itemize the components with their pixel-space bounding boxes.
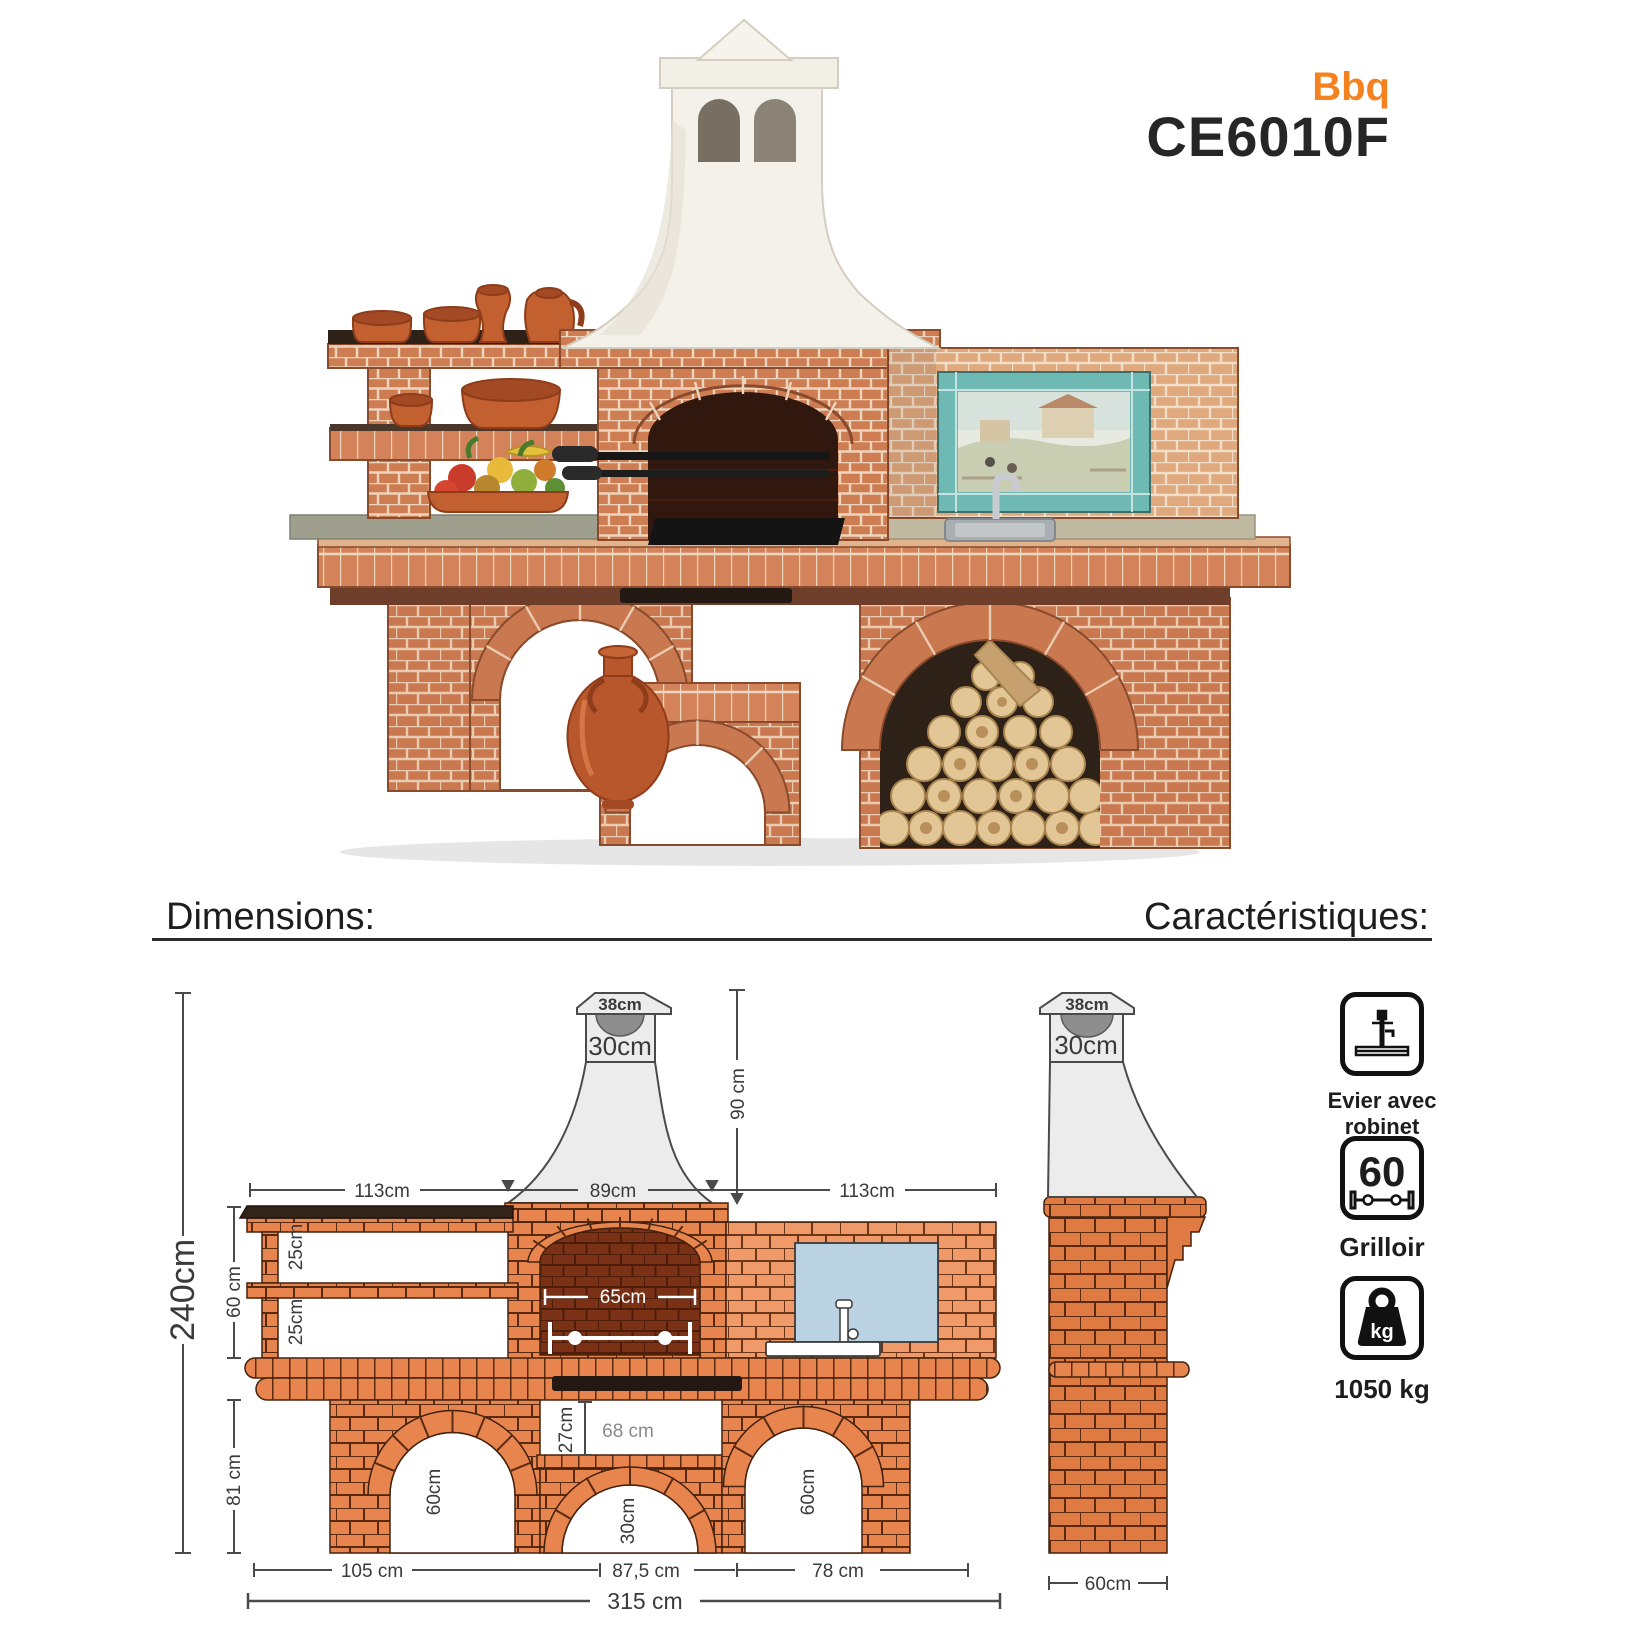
front-cap-width: 38cm xyxy=(598,995,641,1014)
side-cap-width: 38cm xyxy=(1065,995,1108,1014)
tile-panel-front xyxy=(795,1243,938,1342)
feature-weight-label: 1050 kg xyxy=(1292,1374,1472,1405)
sink-faucet-icon xyxy=(1345,997,1419,1071)
side-view xyxy=(1040,993,1206,1553)
left-arch-height: 60cm xyxy=(424,1469,445,1515)
lower-shelf-gap: 25cm xyxy=(286,1299,307,1345)
tile-mural xyxy=(938,372,1150,512)
feature-sink-label: Evier avec robinet xyxy=(1292,1088,1472,1140)
chimney-vent xyxy=(754,99,796,162)
feature-rotisserie-box: 60 xyxy=(1340,1136,1424,1220)
side-neck-width: 30cm xyxy=(1054,1030,1118,1060)
upper-shelf-gap: 25cm xyxy=(286,1224,307,1270)
weight-icon: kg xyxy=(1345,1281,1419,1355)
sink-front xyxy=(766,1342,880,1356)
photo-base xyxy=(388,592,1230,848)
feature-rotisserie-label: Grilloir xyxy=(1292,1232,1472,1263)
model-number: CE6010F xyxy=(1146,108,1390,167)
right-arch-span: 78 cm xyxy=(812,1561,864,1582)
left-arch-span: 105 cm xyxy=(341,1561,403,1582)
photo-chimney xyxy=(562,20,938,348)
hood-height: 90 cm xyxy=(728,1068,749,1120)
firebox-section-width: 89cm xyxy=(590,1181,636,1202)
ash-drawer xyxy=(620,588,792,603)
right-arch-height: 60cm xyxy=(798,1469,819,1515)
feature-weight-box: kg xyxy=(1340,1276,1424,1360)
characteristics-heading: Caractéristiques: xyxy=(1144,896,1429,939)
firebox-opening-width: 65cm xyxy=(600,1287,646,1308)
chimney-vent xyxy=(698,99,740,162)
front-view xyxy=(240,993,1000,1553)
total-height: 240cm xyxy=(164,1239,202,1341)
product-sheet: Bbq CE6010F Dimensions: Caractéristiques… xyxy=(0,0,1648,1647)
shelf-zone-height: 60 cm xyxy=(224,1266,245,1318)
photo-firebox xyxy=(552,330,940,545)
photo-right-wall xyxy=(888,348,1238,541)
base-height: 81 cm xyxy=(224,1454,245,1506)
left-section-width: 113cm xyxy=(354,1181,410,1202)
weight-unit: kg xyxy=(1370,1321,1393,1343)
dimensions-heading: Dimensions: xyxy=(166,896,375,939)
side-depth: 60cm xyxy=(1085,1574,1131,1595)
front-neck-width: 30cm xyxy=(588,1031,652,1061)
niche-height: 27cm xyxy=(556,1407,577,1453)
feature-sink-box xyxy=(1340,992,1424,1076)
product-photo xyxy=(0,0,1648,880)
title-block: Bbq CE6010F xyxy=(1146,66,1390,167)
middle-span: 87,5 cm xyxy=(612,1561,680,1582)
rotisserie-icon: 60 xyxy=(1345,1141,1419,1215)
middle-arch-height: 30cm xyxy=(618,1498,639,1544)
right-section-width: 113cm xyxy=(839,1181,895,1202)
rotisserie-value: 60 xyxy=(1359,1148,1406,1195)
total-width: 315 cm xyxy=(607,1588,682,1614)
niche-width: 68 cm xyxy=(602,1421,654,1442)
brand-label: Bbq xyxy=(1146,66,1390,108)
